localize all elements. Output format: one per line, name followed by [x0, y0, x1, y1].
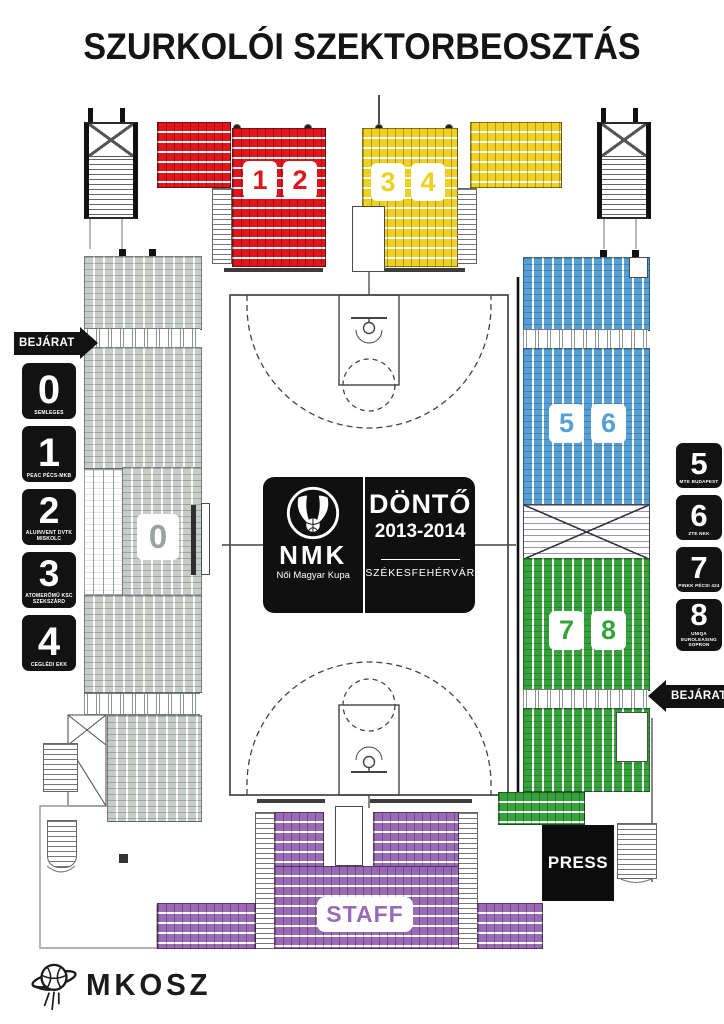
sector-badge-0: 0: [137, 514, 179, 560]
tunnel-bottom: [335, 806, 363, 866]
event-logo-left: NMK Női Magyar Kupa: [263, 477, 363, 613]
staff-badge: STAFF: [317, 897, 413, 932]
staff-seats-right-arm: [373, 812, 459, 870]
federation-logo: MKOSZ: [30, 956, 218, 1014]
stair-strip-staff-left: [255, 812, 276, 949]
legend-team: PEAC PÉCS-MKB: [25, 472, 74, 479]
legend-box-0: 0 SEMLEGES: [22, 363, 76, 419]
sector-0-seats-a: [84, 256, 202, 330]
nmk-name: Női Magyar Kupa: [276, 570, 349, 581]
legend-team: CEGLÉDI EKK: [29, 661, 69, 668]
arena-seating-map: SZURKOLÓI SZEKTORBEOSZTÁS: [0, 0, 724, 1024]
legend-box-3: 3 ATOMERŐMŰ KSC SZEKSZÁRD: [22, 552, 76, 608]
legend-number: 3: [39, 557, 60, 591]
sector-0-seats-b: [84, 347, 202, 469]
sector-5-6-seats: [523, 348, 650, 506]
sector-badge-5: 5: [549, 404, 584, 443]
legend-box-1: 1 PEAC PÉCS-MKB: [22, 426, 76, 482]
legend-team: PINKK PÉCSI 424: [676, 582, 721, 589]
event-logo-right: DÖNTŐ 2013-2014 SZÉKESFEHÉRVÁR: [365, 477, 475, 613]
staff-seats-left-arm: [274, 812, 324, 870]
empty-seats-left: [84, 469, 123, 595]
sector-8-corner-seats: [498, 792, 585, 825]
legend-number: 2: [39, 494, 60, 528]
sector-0-seats-e: [107, 715, 202, 822]
legend-box-8: 8 UNIQA EUROLEASING SOPRON: [676, 599, 722, 651]
sector-badge-4: 4: [411, 163, 445, 201]
legend-number: 1: [38, 435, 60, 472]
ledge-top-left: [224, 268, 323, 272]
tunnel-right: [616, 712, 648, 762]
bench-table: [201, 503, 210, 575]
legend-team: ALUINVENT DVTK MISKOLC: [22, 529, 76, 543]
event-city: SZÉKESFEHÉRVÁR: [365, 567, 475, 579]
staircase-press: [617, 823, 657, 879]
walkway-left-upper: [84, 328, 200, 349]
entrance-arrow-right: BEJÁRAT: [648, 680, 724, 712]
staircase-left-a: [43, 743, 78, 792]
sector-7-8-seats: [523, 558, 650, 691]
legend-team: ZTE NKK: [686, 530, 711, 537]
entrance-arrow-left: BEJÁRAT: [14, 327, 98, 359]
legend-number: 7: [690, 554, 707, 583]
ledge-bottom-right: [370, 799, 472, 803]
legend-team: MTK BUDAPEST: [678, 478, 721, 485]
sector-badge-2: 2: [283, 161, 317, 199]
event-logo: NMK Női Magyar Kupa DÖNTŐ 2013-2014 SZÉK…: [263, 477, 475, 613]
legend-box-4: 4 CEGLÉDI EKK: [22, 615, 76, 671]
sector-4-upper-seats: [470, 122, 562, 188]
press-box: PRESS: [542, 825, 614, 901]
basketball-globe-icon: [30, 956, 78, 1014]
legend-team: SEMLEGES: [32, 409, 65, 416]
nmk-abbr: NMK: [279, 542, 347, 568]
logo-thin-line: [381, 559, 460, 560]
legend-team: ATOMERŐMŰ KSC SZEKSZÁRD: [22, 592, 76, 606]
sector-badge-8: 8: [591, 611, 626, 650]
staff-seats-left-strip: [157, 903, 256, 949]
scorer-table: [191, 505, 196, 575]
stair-tower-top-right: [597, 122, 651, 219]
entrance-left-label: BEJÁRAT: [14, 332, 80, 355]
legend-box-5: 5 MTK BUDAPEST: [676, 443, 722, 488]
legend-box-6: 6 ZTE NKK: [676, 495, 722, 540]
stair-strip-staff-right: [457, 812, 478, 949]
sector-badge-1: 1: [243, 161, 277, 199]
legend-number: 8: [690, 601, 707, 630]
sector-badge-3: 3: [371, 163, 405, 201]
walkway-right-upper: [523, 329, 648, 350]
staircase-left-b: [47, 820, 77, 868]
arrow-left-icon: [648, 680, 666, 712]
legend-team: UNIQA EUROLEASING SOPRON: [676, 630, 722, 648]
event-season: 2013-2014: [375, 522, 466, 541]
sector-0-seats-d: [84, 595, 202, 693]
legend-number: 0: [38, 372, 60, 409]
ledge-bottom-left: [257, 799, 325, 803]
sector-badge-6: 6: [591, 404, 626, 443]
federation-name: MKOSZ: [86, 967, 211, 1003]
stair-flight-top-right: [457, 188, 477, 264]
stair-tower-top-left: [84, 122, 138, 219]
stair-flight-top-left: [212, 188, 232, 264]
sector-badge-7: 7: [549, 611, 584, 650]
legend-box-2: 2 ALUINVENT DVTK MISKOLC: [22, 489, 76, 545]
legend-number: 5: [690, 450, 707, 479]
nmk-emblem-icon: [284, 484, 342, 542]
entrance-right-label: BEJÁRAT: [666, 685, 724, 708]
legend-number: 4: [38, 624, 60, 661]
sector-1-upper-seats: [157, 122, 231, 188]
staff-seats-right-strip: [477, 903, 543, 949]
event-name: DÖNTŐ: [369, 491, 472, 518]
tunnel-top: [352, 206, 385, 272]
walkway-left-lower: [84, 693, 200, 715]
legend-box-7: 7 PINKK PÉCSI 424: [676, 547, 722, 592]
arrow-right-icon: [80, 327, 98, 359]
walkway-right-lower: [523, 689, 648, 710]
crossed-zone: [523, 504, 650, 560]
notch-blue: [629, 257, 648, 278]
legend-number: 6: [690, 502, 707, 531]
